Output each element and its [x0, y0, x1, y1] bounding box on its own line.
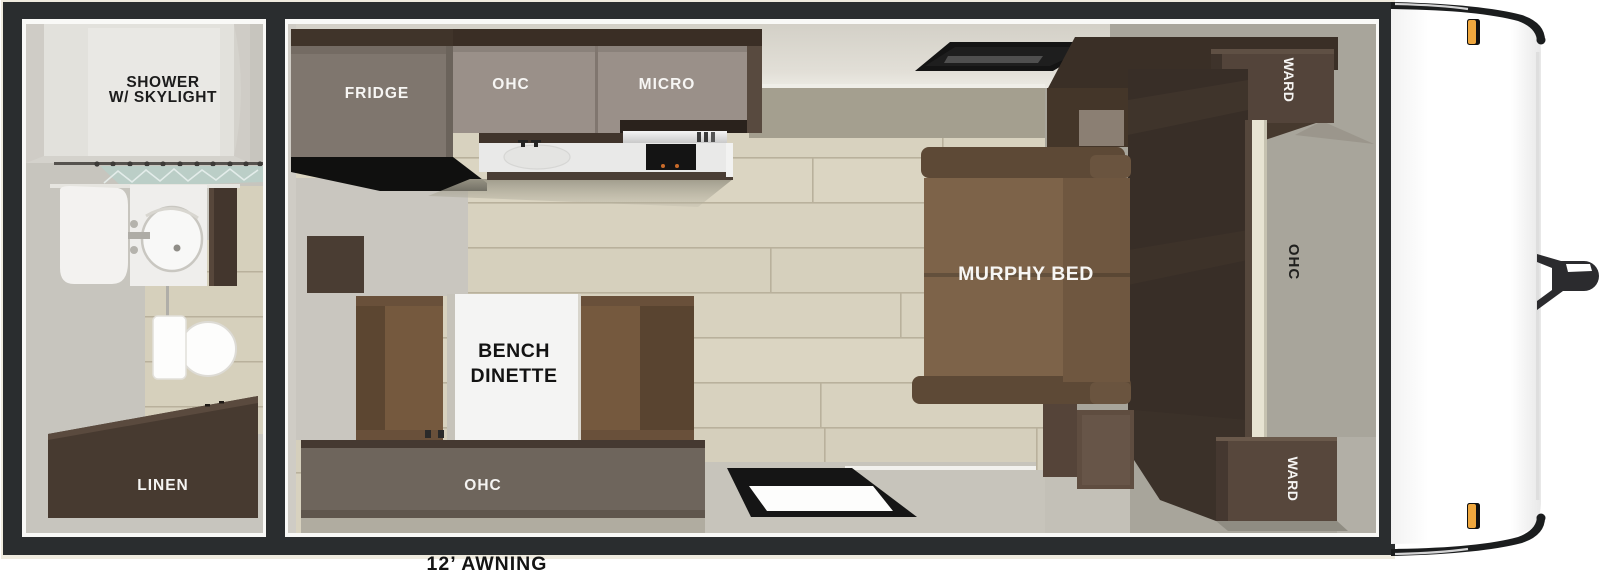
svg-text:12’ AWNING: 12’ AWNING — [427, 553, 548, 572]
svg-text:WARD: WARD — [1281, 58, 1297, 103]
svg-text:BENCH: BENCH — [478, 340, 550, 362]
svg-text:OHC: OHC — [1285, 244, 1302, 280]
svg-text:OHC: OHC — [464, 477, 501, 494]
svg-text:FRIDGE: FRIDGE — [345, 85, 410, 102]
svg-text:LINEN: LINEN — [137, 477, 189, 494]
svg-text:WARD: WARD — [1285, 457, 1301, 502]
svg-text:W/ SKYLIGHT: W/ SKYLIGHT — [109, 89, 217, 106]
svg-text:MICRO: MICRO — [639, 76, 696, 93]
svg-text:MURPHY BED: MURPHY BED — [958, 263, 1094, 285]
svg-text:OHC: OHC — [492, 76, 529, 93]
svg-text:DINETTE: DINETTE — [471, 365, 558, 387]
